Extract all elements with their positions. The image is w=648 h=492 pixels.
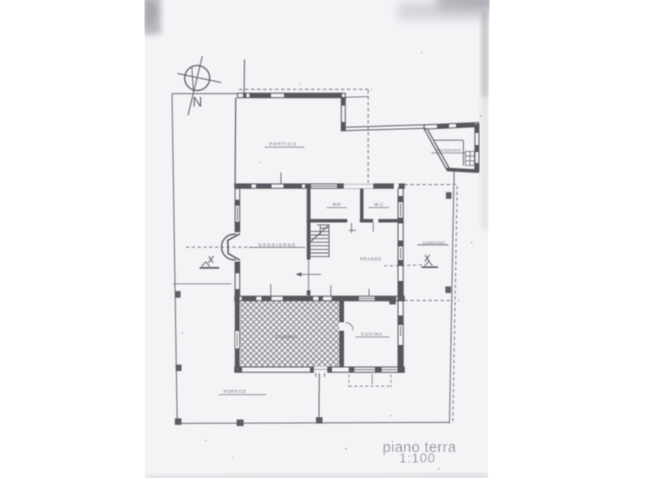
svg-text:N: N <box>193 95 203 110</box>
svg-text:GIARDINO: GIARDINO <box>423 241 446 245</box>
svg-text:SOGGIORNO: SOGGIORNO <box>259 242 297 247</box>
svg-text:RIP.: RIP. <box>333 202 342 207</box>
svg-text:PASSAGGIO: PASSAGGIO <box>436 148 461 152</box>
svg-text:WC: WC <box>374 202 385 207</box>
svg-text:PORTICO: PORTICO <box>224 389 247 394</box>
svg-text:PRANZO: PRANZO <box>360 256 382 261</box>
svg-text:TAVERNA: TAVERNA <box>276 334 298 339</box>
svg-text:CUCINA: CUCINA <box>361 332 383 337</box>
svg-text:1:100: 1:100 <box>399 451 436 466</box>
svg-text:PORTICO: PORTICO <box>269 142 297 147</box>
